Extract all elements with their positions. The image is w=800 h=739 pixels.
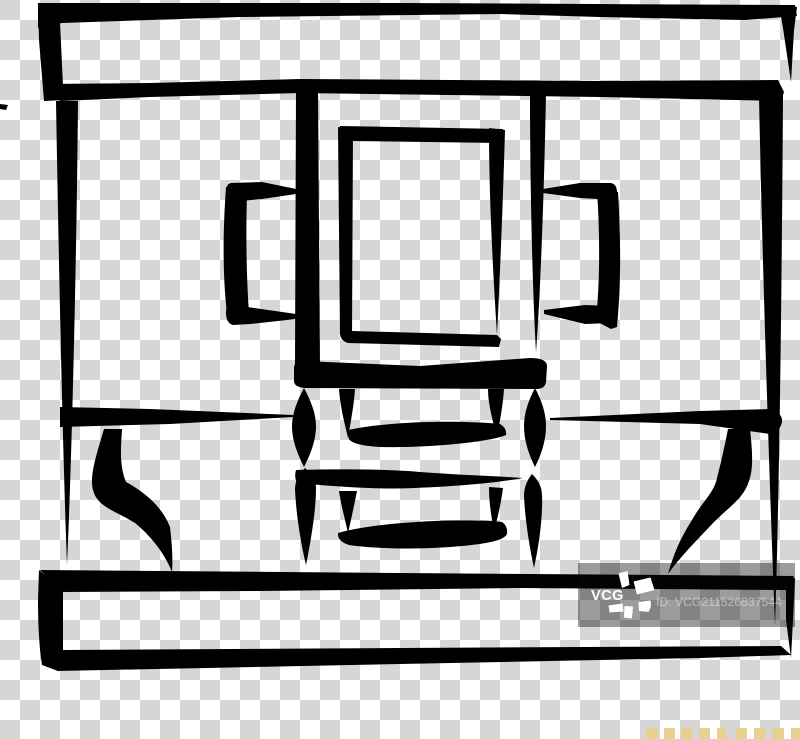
svg-text:ID: VCG211526837544: ID: VCG211526837544 <box>656 595 782 609</box>
svg-text:VCG: VCG <box>591 588 624 604</box>
